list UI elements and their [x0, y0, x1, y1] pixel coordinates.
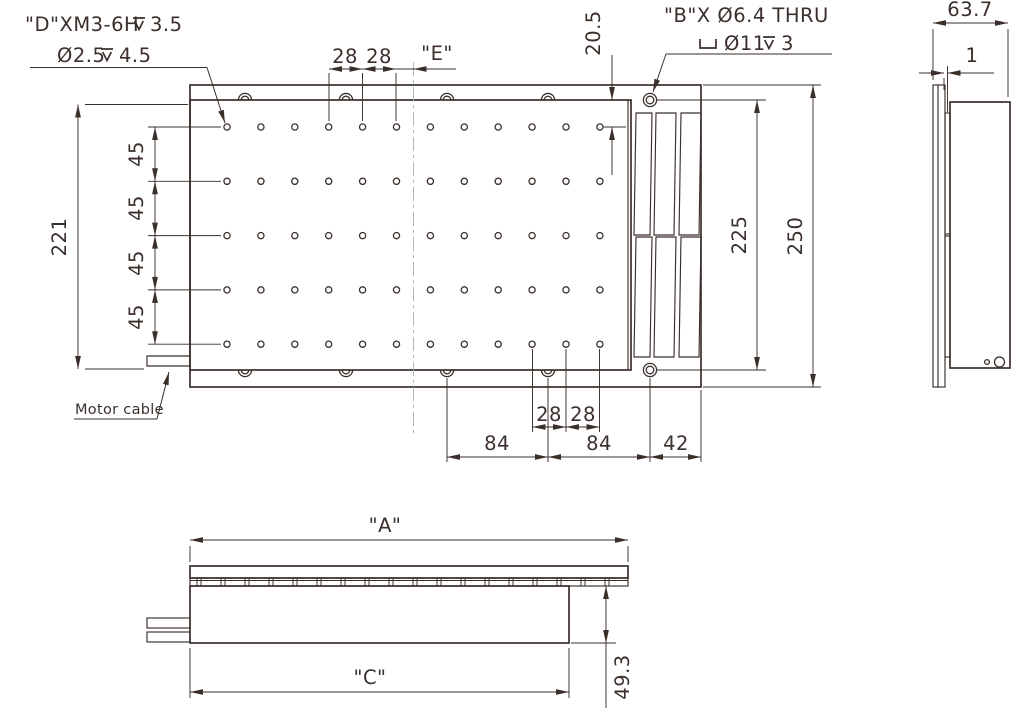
table-m3-hole	[224, 124, 230, 130]
svg-text:1: 1	[966, 44, 979, 67]
table-m3-hole	[393, 233, 399, 239]
side-view: 63.7 1	[919, 0, 1010, 387]
table-m3-hole	[393, 178, 399, 184]
magnet-slot-array	[634, 113, 701, 357]
base-cbore-hole-full	[646, 366, 654, 374]
svg-text:45: 45	[125, 141, 148, 167]
drawing-sheet: 221 45 45 45 45 28 28 "E"	[0, 0, 1023, 716]
d-thread-depth: 3.5	[150, 13, 183, 36]
d-leader-line	[207, 68, 225, 124]
table-m3-hole	[529, 287, 535, 293]
counterbore-symbol-icon	[700, 39, 716, 48]
table-m3-hole	[326, 178, 332, 184]
table-m3-hole	[326, 124, 332, 130]
table-m3-hole	[461, 124, 467, 130]
table-m3-hole	[258, 124, 264, 130]
table-m3-hole	[427, 178, 433, 184]
table-m3-hole	[360, 178, 366, 184]
svg-text:250: 250	[784, 217, 807, 256]
table-m3-hole	[495, 341, 501, 347]
table-m3-hole	[360, 233, 366, 239]
table-m3-hole	[427, 233, 433, 239]
table-m3-hole	[495, 287, 501, 293]
svg-text:49.3: 49.3	[611, 654, 634, 699]
svg-text:84: 84	[484, 432, 510, 455]
table-m3-hole	[597, 287, 603, 293]
b-cbore-depth: 3	[781, 32, 794, 55]
svg-text:28: 28	[366, 45, 392, 68]
front-teeth-strip	[190, 578, 628, 586]
table-m3-hole	[529, 178, 535, 184]
table-m3-hole	[495, 178, 501, 184]
table-m3-hole	[258, 233, 264, 239]
table-m3-hole	[224, 233, 230, 239]
table-m3-hole	[495, 233, 501, 239]
d-thread-spec: "D"XM3-6H	[25, 13, 139, 36]
table-m3-hole	[427, 124, 433, 130]
table-m3-hole	[529, 341, 535, 347]
base-cbore-hole-full	[643, 363, 656, 376]
svg-text:"C": "C"	[353, 666, 386, 689]
table-m3-hole	[461, 287, 467, 293]
svg-text:45: 45	[125, 195, 148, 221]
base-plate-outline	[190, 85, 701, 387]
svg-text:45: 45	[125, 250, 148, 276]
table-m3-hole	[563, 124, 569, 130]
side-connector-hole-small	[985, 360, 990, 365]
dim-row-pitch-45: 45 45 45 45	[125, 127, 221, 344]
table-outline	[190, 100, 631, 370]
table-m3-hole	[360, 124, 366, 130]
table-m3-hole	[292, 233, 298, 239]
table-m3-hole	[292, 178, 298, 184]
table-m3-hole	[495, 124, 501, 130]
dim-c: "C"	[190, 648, 569, 698]
table-m3-hole	[258, 341, 264, 347]
table-m3-hole	[563, 287, 569, 293]
motor-cable-stub	[147, 356, 190, 366]
d-pilot-dia: Ø2.5	[57, 44, 105, 67]
table-m3-hole	[563, 178, 569, 184]
side-body-block	[950, 102, 1010, 368]
table-m3-hole	[258, 178, 264, 184]
table-m3-hole	[461, 178, 467, 184]
svg-text:225: 225	[728, 216, 751, 255]
base-edge-holes	[238, 93, 656, 376]
table-m3-hole	[563, 233, 569, 239]
b-thru-spec: "B"X Ø6.4 THRU	[664, 4, 829, 27]
dim-top-pitch: 28 28	[329, 45, 396, 121]
front-teeth-ticks	[190, 579, 628, 586]
dim-a: "A"	[190, 514, 628, 562]
row-extension-lines	[148, 127, 221, 344]
svg-text:20.5: 20.5	[582, 10, 605, 55]
table-m3-hole	[563, 341, 569, 347]
svg-text:28: 28	[332, 45, 358, 68]
dim-49-3: 49.3	[571, 586, 634, 708]
plan-view: 221 45 45 45 45 28 28 "E"	[25, 4, 832, 462]
table-m3-hole	[326, 287, 332, 293]
svg-text:221: 221	[48, 218, 71, 257]
table-m3-hole	[461, 233, 467, 239]
table-m3-hole	[461, 341, 467, 347]
motor-cable-callout: Motor cable	[74, 372, 169, 419]
motor-cable-label: Motor cable	[75, 402, 164, 418]
front-table-plate	[190, 566, 628, 578]
table-m3-hole	[326, 341, 332, 347]
table-m3-hole	[224, 287, 230, 293]
front-body-block	[190, 586, 569, 643]
table-m3-hole	[292, 287, 298, 293]
dim-bottom-pitch: 28 28	[533, 349, 600, 432]
table-m3-hole	[393, 124, 399, 130]
table-m3-hole	[597, 178, 603, 184]
svg-text:28: 28	[536, 403, 562, 426]
dim-edge-offset: 20.5	[582, 10, 626, 175]
table-m3-hole	[597, 124, 603, 130]
table-m3-hole	[292, 341, 298, 347]
side-base-plate	[933, 85, 945, 387]
b-leader-line	[653, 54, 666, 92]
table-m3-hole	[529, 124, 535, 130]
svg-text:42: 42	[663, 432, 689, 455]
table-m3-hole	[597, 233, 603, 239]
linear-stage-drawing: 221 45 45 45 45 28 28 "E"	[0, 0, 1023, 716]
svg-text:84: 84	[586, 432, 612, 455]
front-view: "A" "C" 49.3	[147, 514, 634, 708]
front-cable-upper	[147, 618, 190, 628]
table-m3-hole	[360, 341, 366, 347]
table-m3-hole	[597, 341, 603, 347]
callout-b-cbore-hole: "B"X Ø6.4 THRU Ø11 3	[653, 4, 832, 92]
dim-221: 221	[48, 105, 188, 370]
table-m3-hole	[224, 178, 230, 184]
callout-d-tapped-hole: "D"XM3-6H 3.5 Ø2.5 4.5	[25, 13, 225, 123]
table-m3-hole	[258, 287, 264, 293]
dim-e: "E"	[396, 42, 456, 69]
svg-text:45: 45	[125, 304, 148, 330]
table-m3-hole	[427, 287, 433, 293]
table-m3-hole	[393, 341, 399, 347]
dim-250: 250	[703, 85, 821, 387]
d-pilot-depth: 4.5	[119, 44, 152, 67]
svg-text:28: 28	[570, 403, 596, 426]
table-m3-hole	[326, 233, 332, 239]
base-cbore-hole-full	[646, 96, 654, 104]
table-m3-hole	[393, 287, 399, 293]
svg-text:63.7: 63.7	[947, 0, 992, 21]
table-m3-hole	[292, 124, 298, 130]
side-connector-hole-large	[995, 357, 1005, 367]
table-m3-hole	[224, 341, 230, 347]
table-m3-hole	[427, 341, 433, 347]
b-cbore-dia: Ø11	[724, 32, 766, 55]
table-m3-hole	[529, 233, 535, 239]
table-m3-hole	[360, 287, 366, 293]
svg-text:"E": "E"	[421, 42, 453, 65]
base-cbore-hole-full	[643, 93, 656, 106]
front-cable-lower	[147, 632, 190, 642]
svg-text:"A": "A"	[369, 514, 402, 537]
